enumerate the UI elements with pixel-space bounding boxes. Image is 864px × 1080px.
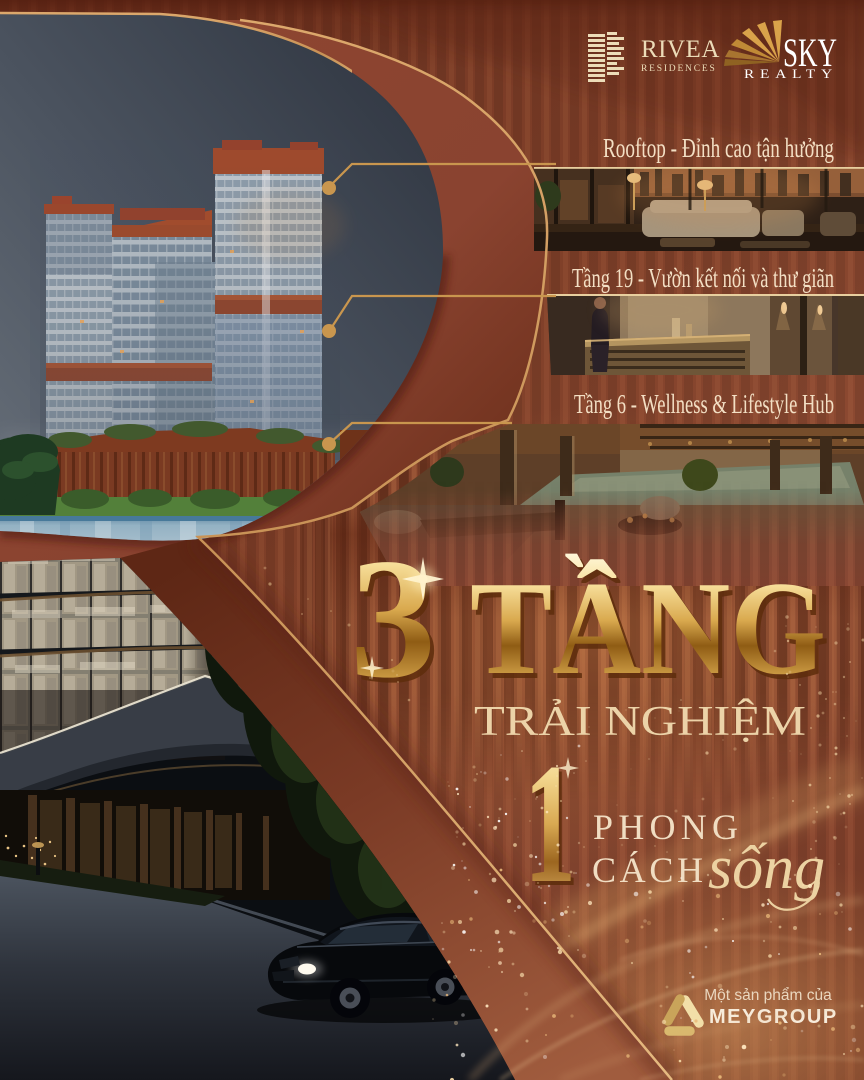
- svg-text:1: 1: [524, 729, 576, 919]
- svg-text:Tầng 19 - Vườn kết nối và thư: Tầng 19 - Vườn kết nối và thư giãn: [572, 263, 834, 293]
- svg-text:TẦNG: TẦNG: [470, 554, 826, 702]
- svg-text:REALTY: REALTY: [744, 66, 838, 81]
- svg-text:RESIDENCES: RESIDENCES: [641, 64, 717, 74]
- svg-text:Rooftop - Đỉnh cao tận hưởng: Rooftop - Đỉnh cao tận hưởng: [603, 133, 834, 163]
- svg-text:3: 3: [350, 524, 436, 714]
- svg-text:sống: sống: [708, 834, 825, 902]
- svg-text:RIVEA: RIVEA: [641, 36, 720, 63]
- svg-text:Một sản phẩm của: Một sản phẩm của: [704, 987, 832, 1004]
- svg-text:Tầng 6 - Wellness & Lifestyle: Tầng 6 - Wellness & Lifestyle Hub: [574, 389, 834, 419]
